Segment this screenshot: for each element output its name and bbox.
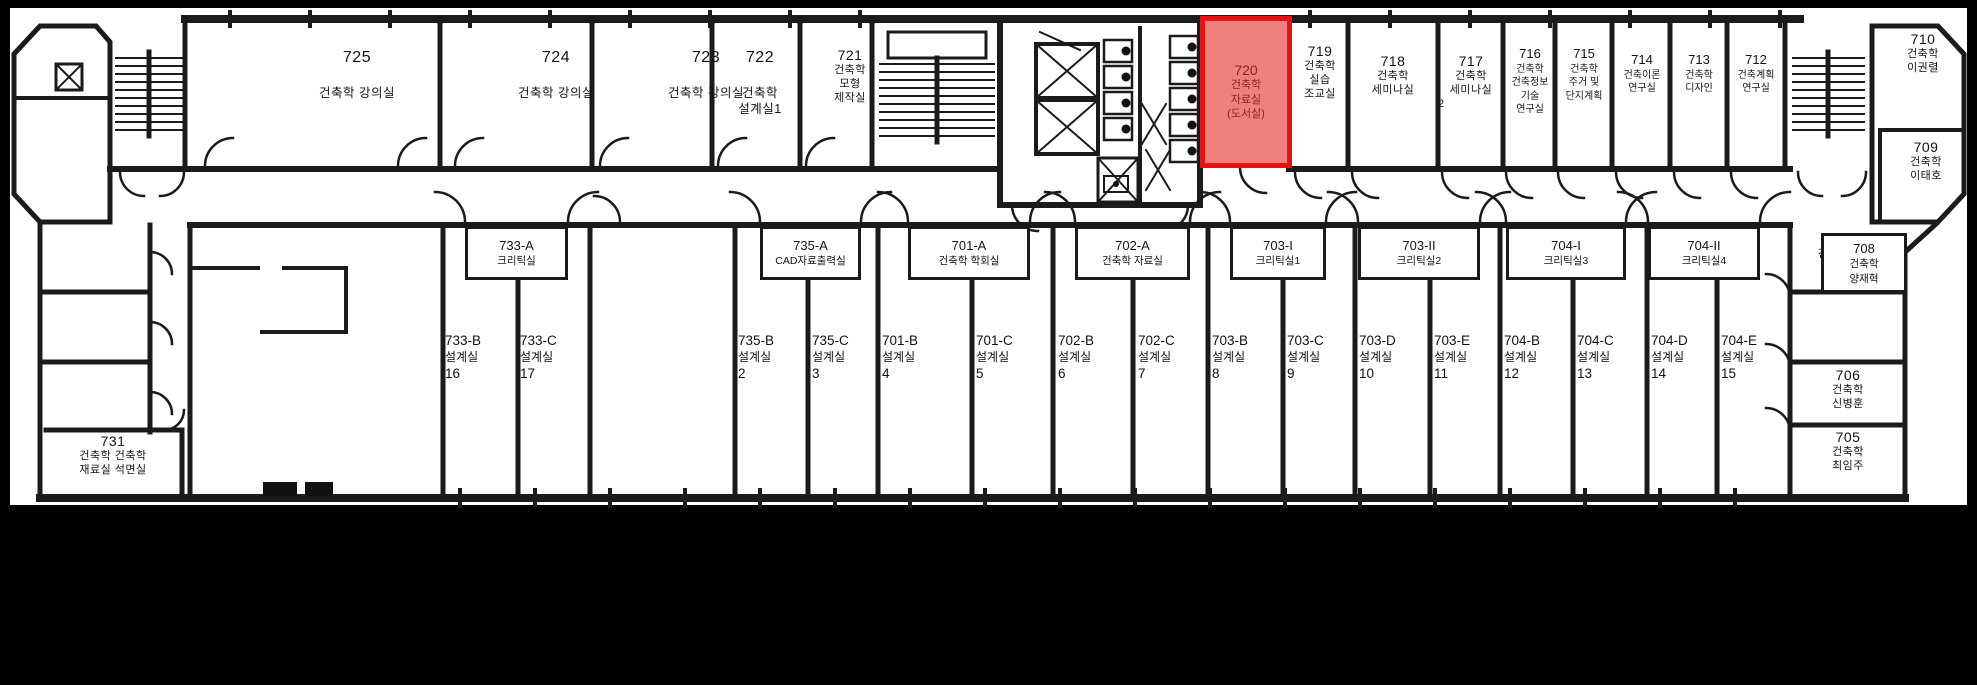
room-703-E[interactable]: 703-E설계실11 (1434, 332, 1498, 383)
room-706[interactable]: 706 건축학 신병훈 (1802, 366, 1894, 412)
room-731[interactable]: 731 건축학 건축학 재료실 석면실 (50, 432, 176, 478)
room-719[interactable]: 719 건축학 실습 조교실 (1290, 42, 1350, 101)
room-714[interactable]: 714 건축이론 연구실 (1614, 52, 1670, 96)
room-720-highlighted[interactable]: 720 건축학 자료실 (도서실) (1200, 16, 1292, 168)
room-703-II[interactable]: 703-II 크리틱실2 (1358, 226, 1480, 280)
room-number: 720 (1234, 62, 1257, 78)
room-712[interactable]: 712 건축계획 연구실 (1728, 52, 1784, 96)
room-704-B[interactable]: 704-B설계실12 (1504, 332, 1572, 383)
room-713[interactable]: 713 건축학 디자인 (1671, 52, 1727, 96)
room-703-D[interactable]: 703-D설계실10 (1359, 332, 1429, 383)
room-704-II[interactable]: 704-II 크리틱실4 (1648, 226, 1760, 280)
room-722[interactable]: 722 건축학 설계실1 (716, 48, 804, 117)
room-704-E[interactable]: 704-E설계실15 (1721, 332, 1785, 383)
room-735-A[interactable]: 735-A CAD자료출력실 (760, 226, 861, 280)
room-721[interactable]: 721 건축학 모형 제작실 (810, 46, 890, 105)
room-733-C[interactable]: 733-C설계실17 (520, 332, 588, 383)
room-725[interactable]: 725 건축학 강의실 (257, 48, 457, 101)
room-703-I[interactable]: 703-I 크리틱실1 (1230, 226, 1326, 280)
room-718[interactable]: 718 건축학 세미나실 (1350, 52, 1436, 98)
room-710[interactable]: 710 건축학 이권렬 (1884, 30, 1962, 76)
room-733-B[interactable]: 733-B설계실16 (445, 332, 517, 383)
room-703-B[interactable]: 703-B설계실8 (1212, 332, 1282, 383)
room-701-C[interactable]: 701-C설계실5 (976, 332, 1048, 383)
room-702-C[interactable]: 702-C설계실7 (1138, 332, 1208, 383)
room-705[interactable]: 705 건축학 최임주 (1802, 428, 1894, 474)
room-708[interactable]: 708 건축학 양재혁 (1821, 233, 1907, 293)
room-701-A[interactable]: 701-A 건축학 학회실 (908, 226, 1030, 280)
room-701-B[interactable]: 701-B설계실4 (882, 332, 946, 383)
room-704-I[interactable]: 704-I 크리틱실3 (1506, 226, 1626, 280)
room-704-D[interactable]: 704-D설계실14 (1651, 332, 1715, 383)
room-735-C[interactable]: 735-C설계실3 (812, 332, 876, 383)
room-702-A[interactable]: 702-A 건축학 자료실 (1075, 226, 1190, 280)
room-label: 건축학 (1231, 78, 1261, 93)
room-715[interactable]: 715 건축학 주거 및 단지계획 (1556, 46, 1612, 103)
room-717[interactable]: 717 건축학 세미나실 2 (1438, 52, 1504, 111)
room-label: (도서실) (1227, 107, 1265, 122)
room-716[interactable]: 716 건축학 건축정보 기술 연구실 (1504, 46, 1556, 117)
room-702-B[interactable]: 702-B설계실6 (1058, 332, 1130, 383)
room-703-C[interactable]: 703-C설계실9 (1287, 332, 1355, 383)
room-709[interactable]: 709 건축학 이태호 (1890, 138, 1962, 184)
room-label: 자료실 (1231, 93, 1261, 108)
room-704-C[interactable]: 704-C설계실13 (1577, 332, 1645, 383)
room-735-B[interactable]: 735-B설계실2 (738, 332, 806, 383)
room-733-A[interactable]: 733-A 크리틱실 (465, 226, 568, 280)
floorplan-page: 720 건축학 자료실 (도서실) 725 건축학 강의실 724 건축학 강의… (0, 0, 1977, 685)
